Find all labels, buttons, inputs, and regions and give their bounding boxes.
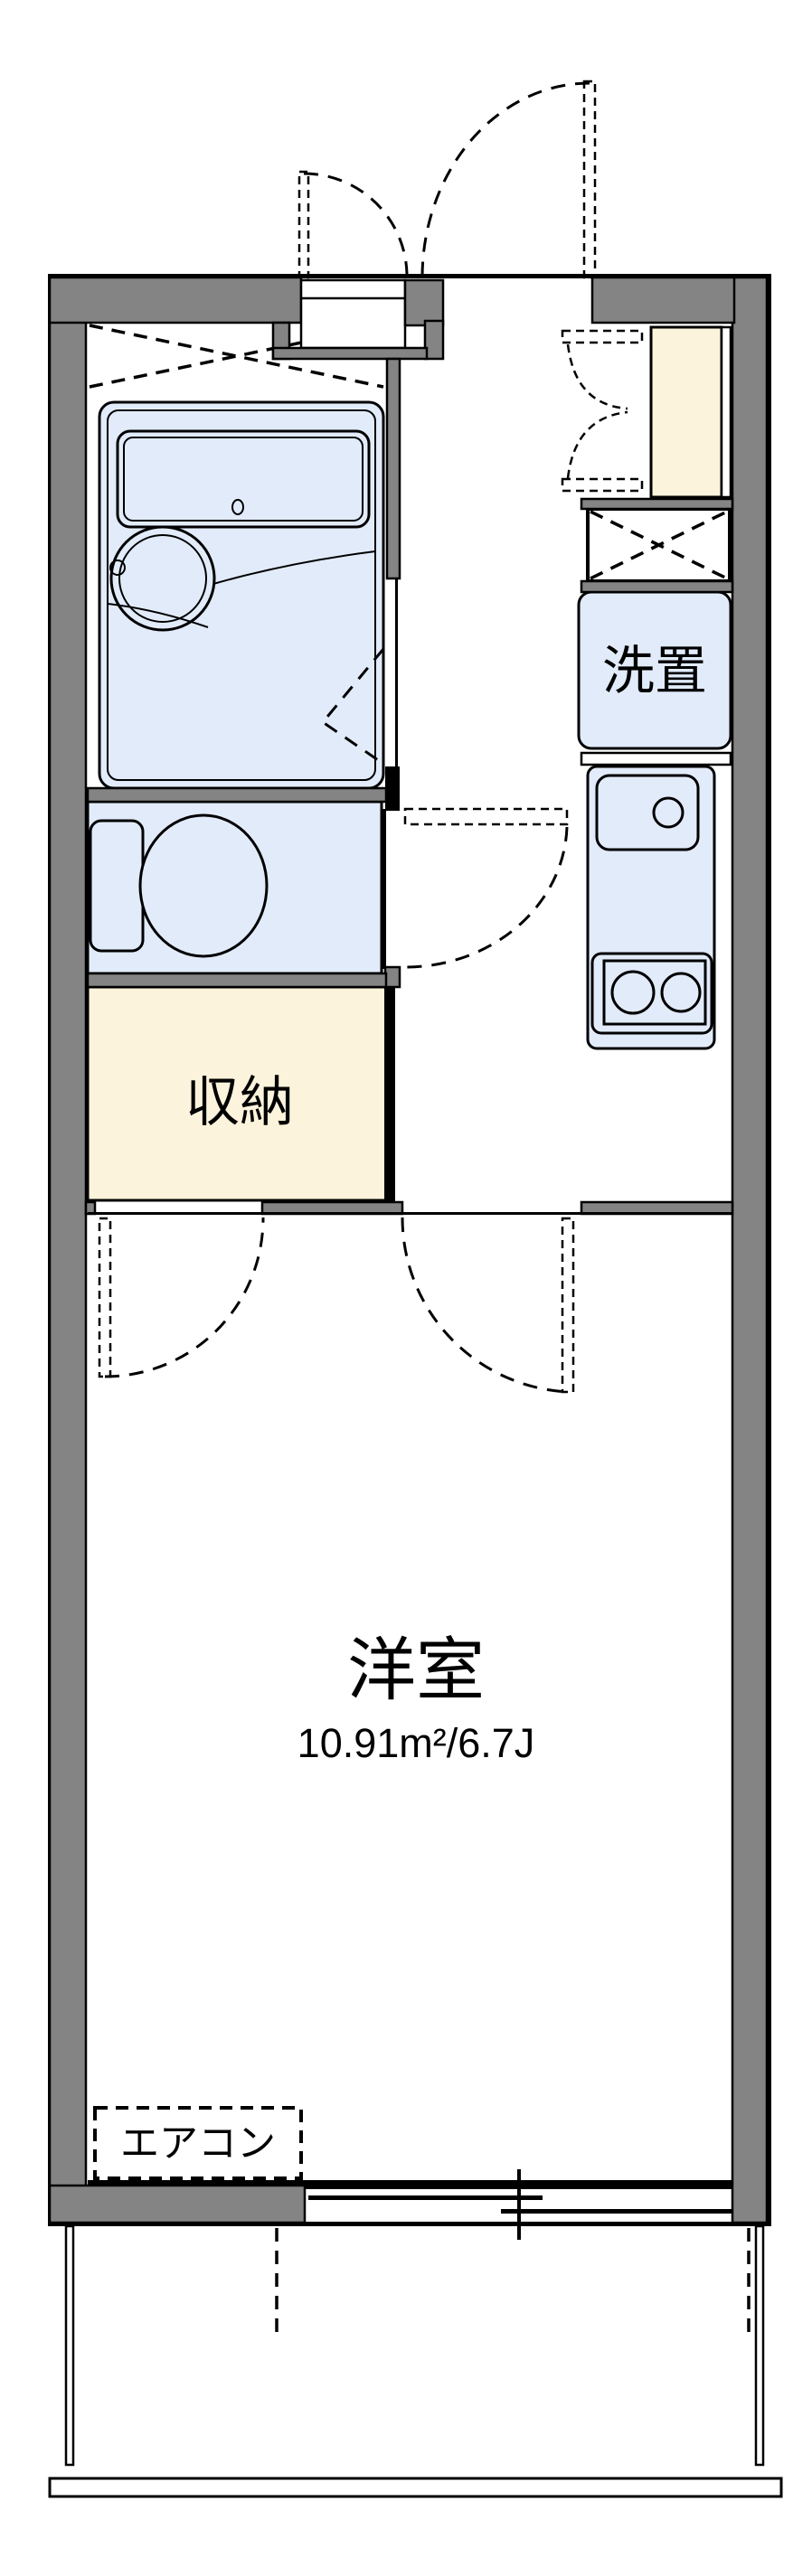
balcony bbox=[50, 2226, 781, 2496]
hallway-door-swing-arc bbox=[404, 827, 567, 967]
labels: 収納 洋室 10.91m²/6.7J エアコン bbox=[120, 1072, 534, 2166]
niche-door-leaf bbox=[299, 172, 308, 277]
balcony-rail-right bbox=[756, 2226, 763, 2465]
kitchen-counter-back-edge bbox=[581, 753, 731, 765]
toilet-tank bbox=[90, 821, 143, 951]
aircon-label: エアコン bbox=[120, 2122, 276, 2166]
right-wall bbox=[732, 277, 767, 2223]
room-top-edge-line bbox=[88, 1212, 732, 1215]
storage-door-leaf bbox=[99, 1218, 110, 1377]
toilet-right-wall-line bbox=[382, 809, 386, 969]
storage-door-swing-arc bbox=[105, 1217, 263, 1377]
entrance-closet-arc-bottom bbox=[568, 412, 628, 478]
balcony-rail-left bbox=[66, 2226, 73, 2465]
genkan-meterbox-wall bbox=[581, 499, 732, 509]
western-room-label: 洋室 bbox=[347, 1632, 485, 1709]
entrance-genkan-floor bbox=[651, 327, 722, 497]
laundry-label: 洗置 bbox=[602, 642, 707, 700]
hallway-door-leaf bbox=[405, 809, 567, 824]
wall-stub-bath bbox=[385, 766, 400, 811]
bath-toilet-wall bbox=[88, 788, 386, 802]
shower-pan bbox=[99, 402, 383, 788]
entrance-step-wall bbox=[273, 348, 427, 359]
window-sash-left bbox=[308, 2195, 543, 2200]
front-door-swing-arc bbox=[422, 83, 590, 276]
western-room-area-label: 10.91m²/6.7J bbox=[297, 1720, 535, 1766]
top-wall-left bbox=[50, 277, 301, 323]
entrance-closet-door-bottom bbox=[562, 479, 642, 491]
top-wall-right bbox=[592, 277, 734, 323]
bathroom-door-track bbox=[395, 578, 398, 768]
entrance-closet-arc-top bbox=[568, 344, 628, 409]
storage-label: 収納 bbox=[185, 1072, 294, 1133]
balcony-rail-front bbox=[50, 2478, 781, 2496]
front-door-leaf bbox=[584, 81, 595, 277]
meterbox-laundry-wall bbox=[581, 581, 732, 592]
window-center-tick bbox=[517, 2169, 521, 2240]
bathroom-right-wall bbox=[387, 359, 400, 578]
storage-right-wall bbox=[384, 987, 395, 1204]
wall-stub-toilet bbox=[385, 967, 400, 987]
entrance-pillar bbox=[405, 280, 443, 325]
bottom-wall-left bbox=[50, 2186, 305, 2223]
room-door-leaf bbox=[562, 1218, 573, 1392]
floor-plan-drawing: 洗置 bbox=[0, 0, 812, 2576]
entrance-closet-door-top bbox=[562, 331, 642, 343]
window-sash-right bbox=[501, 2209, 732, 2214]
entrance-step-edge bbox=[722, 327, 731, 497]
entrance-niche bbox=[301, 280, 405, 348]
left-wall bbox=[50, 277, 86, 2223]
floor-plan: 洗置 bbox=[0, 0, 812, 2576]
toilet bbox=[90, 815, 267, 956]
bathroom-unit bbox=[99, 402, 383, 788]
niche-door-swing-arc bbox=[304, 174, 407, 274]
toilet-bowl bbox=[140, 815, 267, 956]
room-door-swing-arc bbox=[402, 1217, 568, 1392]
toilet-storage-wall bbox=[88, 973, 386, 987]
